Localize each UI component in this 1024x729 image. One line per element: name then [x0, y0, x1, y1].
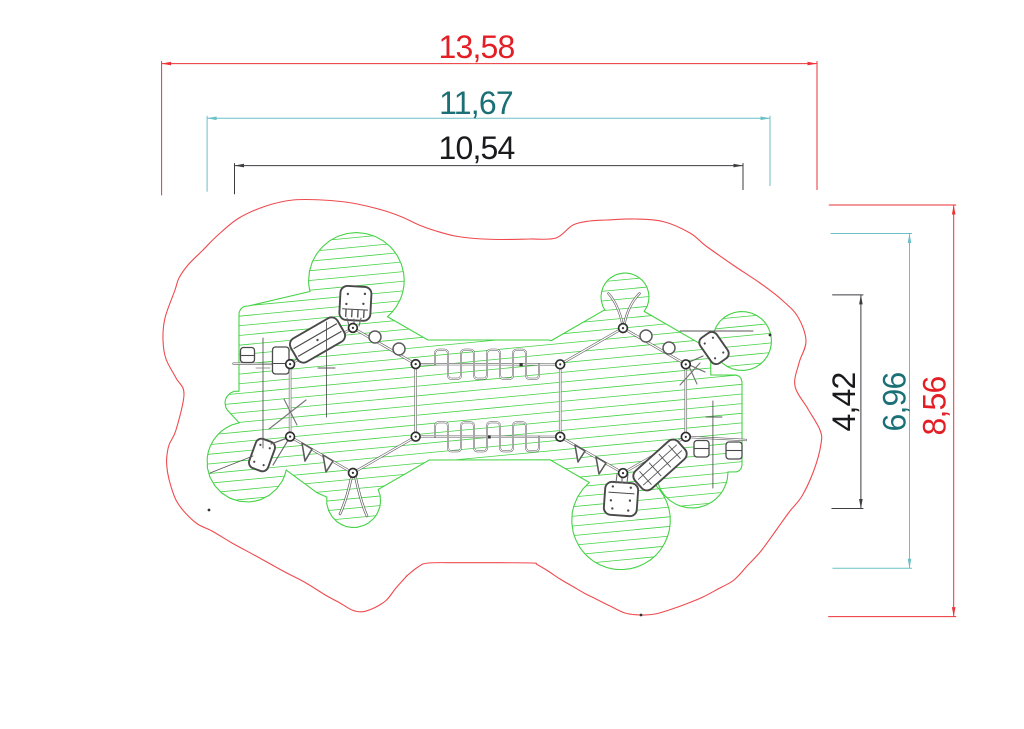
- svg-text:4,42: 4,42: [826, 372, 862, 431]
- svg-text:13,58: 13,58: [438, 29, 514, 65]
- svg-text:6,96: 6,96: [877, 372, 913, 431]
- svg-text:10,54: 10,54: [438, 130, 514, 166]
- svg-text:11,67: 11,67: [439, 85, 513, 121]
- svg-text:8,56: 8,56: [917, 376, 953, 435]
